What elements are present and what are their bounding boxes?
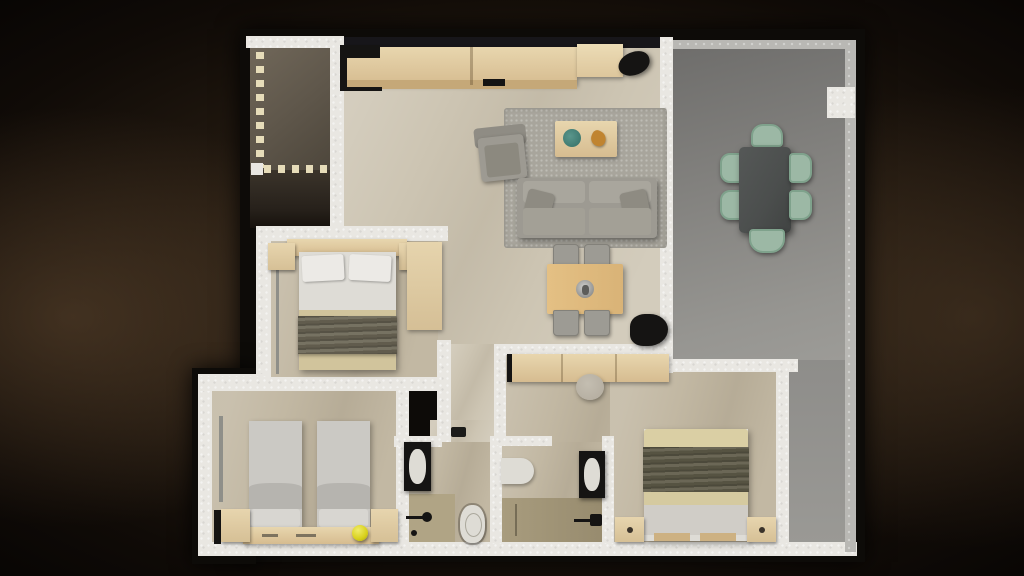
bath2-shower-arm [574,519,592,522]
armchair [473,123,531,184]
kitchen-sink-dark [483,79,505,86]
entry-dashed-line-vertical [256,52,264,168]
wall-top-left [246,36,338,48]
coffee-table [555,121,617,157]
master-wall-strip [276,266,279,374]
twin-bed-1-fold [249,483,302,509]
second-bed-cream-mid [644,492,748,505]
twin-headboard-groove-1 [262,534,278,537]
dining-chair-bottom-left [553,310,579,336]
sofa [517,178,657,238]
outdoor-chair-top [751,124,783,147]
master-bed [299,252,396,370]
bath1-toilet-seat-line [465,513,482,537]
wall-bathroom-2-top [494,436,552,446]
bath1-vanity [404,442,431,491]
dining-chair-bottom-right [584,310,610,336]
wall-bedrooms-divider [198,377,450,391]
second-nightstand-left-knob [627,527,633,533]
twin-bed-1 [249,421,302,527]
centerpiece-detail [582,285,589,295]
outdoor-chair-right-1 [789,153,812,183]
sideboard-seam-2 [615,354,617,382]
second-bed-base-left [654,533,690,541]
second-bed [644,429,748,541]
kitchen-counter-right [577,44,623,77]
terrace-floor-strip [786,360,847,544]
master-pillow-left [301,254,344,282]
decor-teal-tray [563,129,581,147]
wall-hallway-left [437,340,451,442]
second-bed-cream-top [644,429,748,447]
sideboard-seam-1 [561,354,563,382]
twin-bed-2-fold [317,483,370,509]
bath1-shower-arm [406,516,426,519]
twin-corner-unit-right [371,509,398,542]
yellow-ball [352,525,368,541]
kitchen-appliance-black-side [340,45,347,91]
pouf [576,374,604,400]
kitchen-appliance-black-under [340,87,382,91]
entry-dashed-line-horizontal [264,165,332,173]
bath2-drain-line [515,504,517,536]
second-bed-olive-throw [643,447,749,492]
wall-hallway-right [494,344,506,446]
bath1-toilet [460,505,485,543]
outdoor-chair-right-2 [789,190,812,220]
kitchen-counter-seam [470,47,473,85]
second-nightstand-right-knob [759,527,765,533]
wall-terrace-top [660,40,856,49]
dining-table [547,264,623,314]
outdoor-chair-bottom [749,229,785,253]
decor-orange-item [589,129,609,149]
bath2-vanity [579,451,605,498]
nook-dark-object [451,427,466,437]
twin-dark-bar [214,510,221,544]
bath1-drain-dot [411,530,417,536]
bath1-basin [409,449,426,484]
floor-plan-scene [0,0,1024,576]
table-centerpiece [574,276,596,302]
bath2-tub-end [501,458,534,484]
outdoor-dining-table [739,147,791,233]
terrace-pillar [827,87,855,118]
armchair-cushion [484,142,521,177]
twin-bed-2 [317,421,370,527]
twin-bed-1-pillow [251,509,300,527]
second-bed-base-right [700,533,736,541]
sideboard-edge [507,354,512,382]
master-wardrobe [407,242,442,330]
sofa-seat-cushion-right [589,208,651,235]
wall-outer-left-lower [198,374,212,556]
twin-corner-unit-left [221,509,250,542]
second-bed-pillows [644,505,748,535]
wall-outer-bottom [198,542,857,556]
entry-corner-marker [251,163,263,175]
master-pillow-right [348,254,391,282]
master-throw [298,316,397,354]
entry-floor-outer [250,170,332,228]
twin-headboard-groove-2 [296,534,316,537]
master-nightstand-left [268,243,295,270]
bath2-basin [584,458,600,491]
second-nightstand-right [747,517,776,542]
twin-wall-strip [219,416,223,502]
wall-bedroom-terrace-strip [776,366,789,544]
second-nightstand-left [615,517,644,542]
sofa-seat-cushion-left [523,208,585,235]
wall-bathrooms-divider [490,436,502,544]
